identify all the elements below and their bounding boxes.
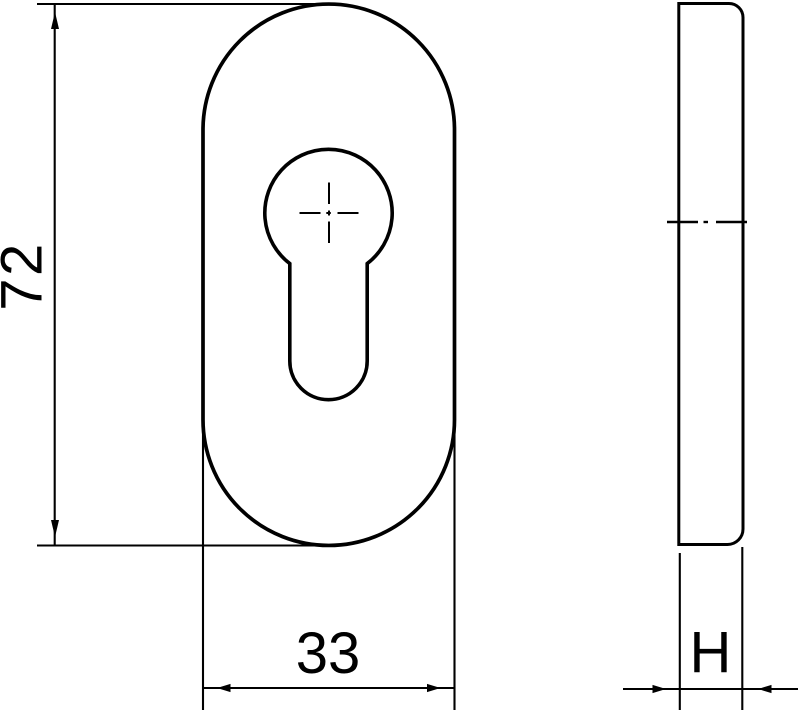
svg-text:72: 72	[0, 241, 55, 311]
svg-text:33: 33	[296, 621, 361, 686]
svg-text:H: H	[690, 620, 732, 685]
